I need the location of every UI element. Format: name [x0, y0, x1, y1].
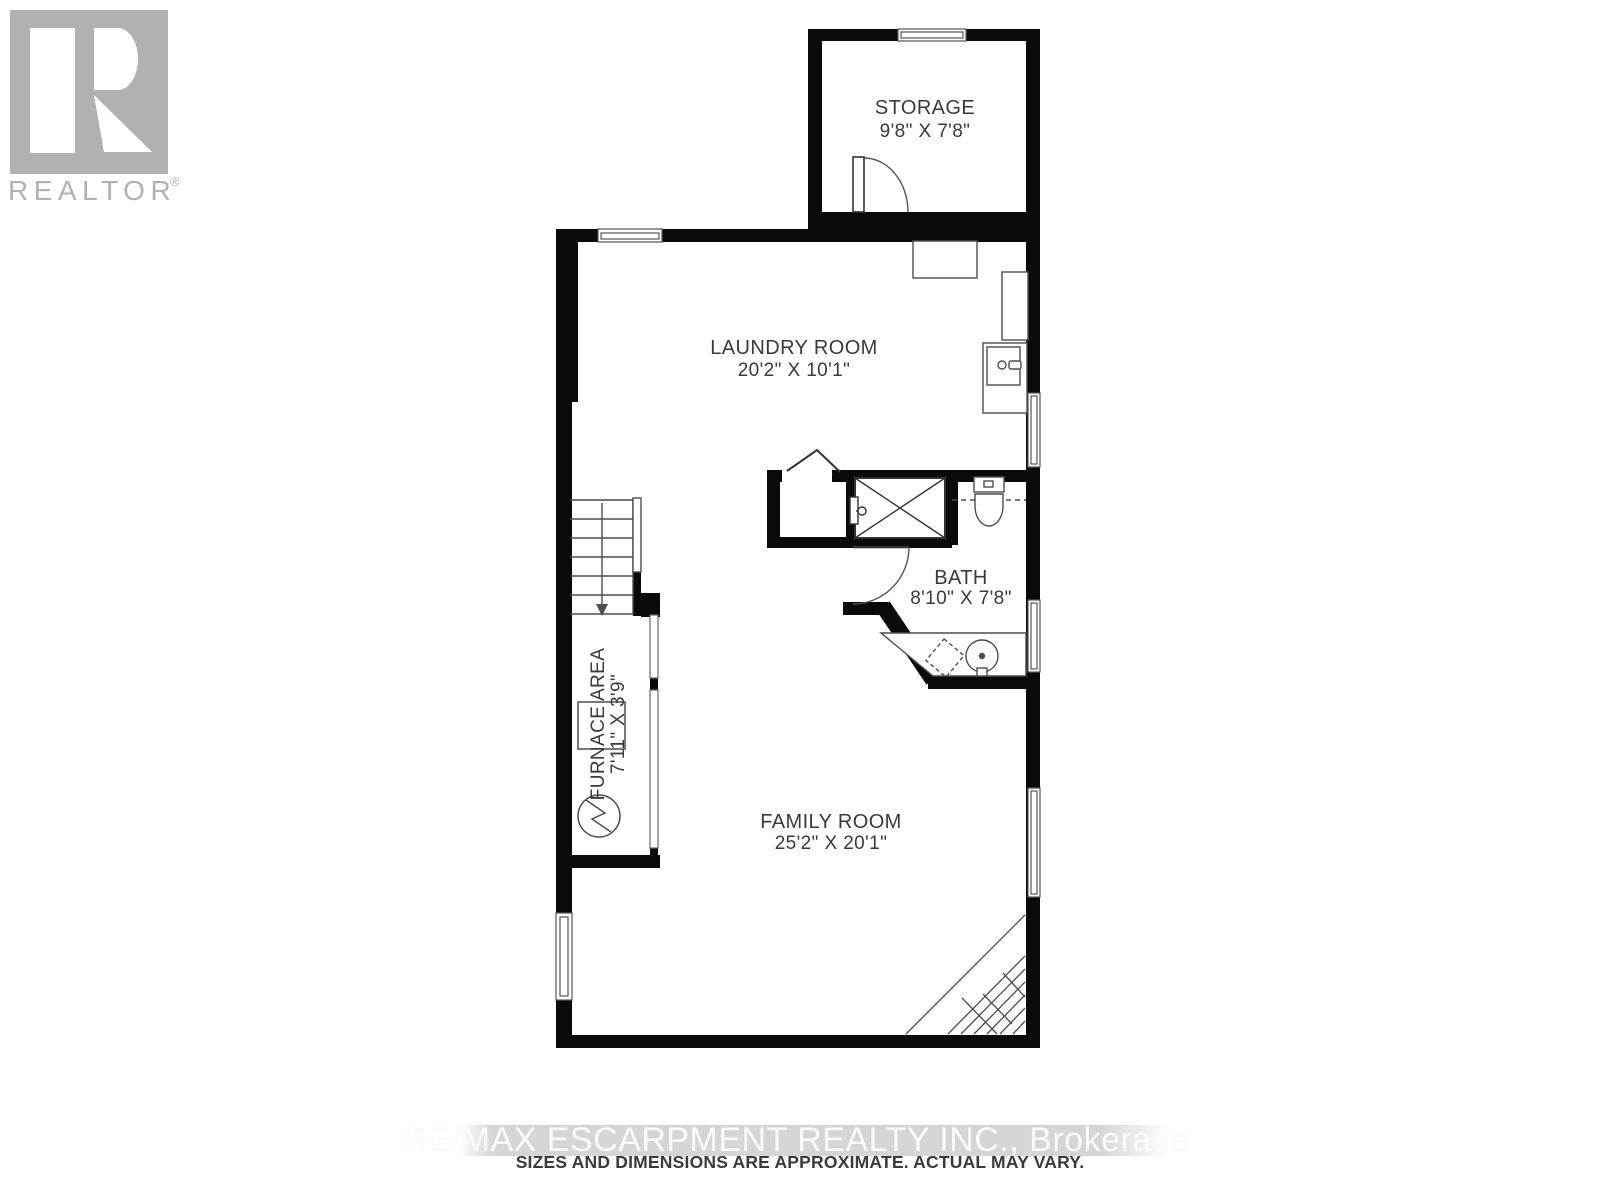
- window-bath-right: [1028, 600, 1040, 672]
- laundry-label: LAUNDRY ROOM: [710, 337, 877, 359]
- sink-drain-dot: [980, 654, 985, 659]
- tub-handle-icon: [1009, 361, 1021, 369]
- window-laundry-right: [1028, 393, 1040, 467]
- floorplan-page: REALTOR ®: [0, 0, 1600, 1200]
- shower: [850, 478, 945, 538]
- laundry-dims: 20'2" X 10'1": [738, 360, 851, 381]
- realtor-logo: REALTOR ®: [8, 10, 180, 206]
- windows: [556, 29, 1040, 1000]
- vanity-counter: [881, 633, 1026, 676]
- window-family-left: [556, 913, 572, 1000]
- bath-dims: 8'10" X 7'8": [910, 588, 1012, 609]
- wall-shower-right: [945, 470, 958, 545]
- wall-furnace-stub: [641, 593, 660, 617]
- footer: RE/MAX ESCARPMENT REALTY INC., Brokerage…: [403, 1121, 1190, 1172]
- bath-door: [853, 547, 909, 604]
- furnace-label: FURNACE AREA: [588, 648, 609, 801]
- family-label: FAMILY ROOM: [760, 811, 901, 833]
- corner-stairs-hatch: [906, 915, 1025, 1034]
- realtor-wordmark: REALTOR: [8, 175, 176, 206]
- storage-dims: 9'8" X 7'8": [880, 121, 971, 142]
- storage-door-leaf: [853, 157, 864, 212]
- wall-furnace-bottom: [556, 855, 660, 868]
- closet-bifold-door: [787, 450, 840, 472]
- bifold-door-icon: [787, 450, 840, 472]
- toilet-flush-button: [984, 481, 993, 487]
- sink-fixture: [977, 668, 987, 676]
- furnace-partition-panels: [650, 615, 658, 848]
- wall-main-left-upper: [572, 229, 578, 402]
- storage-door: [853, 157, 908, 212]
- wall-stair-post: [633, 571, 641, 616]
- laundry-fixtures: [913, 241, 1028, 413]
- stairs-handrail: [633, 498, 641, 572]
- tub-faucet-icon: [998, 361, 1006, 369]
- laundry-tub: [983, 343, 1027, 413]
- window-laundry-top: [598, 229, 662, 242]
- window-family-right: [1028, 788, 1040, 897]
- wall-furnace-post-1: [650, 678, 658, 690]
- bath-vanity: [881, 633, 1026, 677]
- laundry-appliance: [913, 241, 977, 278]
- registered-mark: ®: [170, 174, 180, 189]
- wall-bath-bottom: [928, 676, 1040, 689]
- wall-storage-left: [808, 29, 822, 242]
- disclaimer-text: SIZES AND DIMENSIONS ARE APPROXIMATE. AC…: [516, 1152, 1085, 1172]
- wall-closet-top-stub: [767, 470, 782, 482]
- bath-label: BATH: [934, 567, 987, 589]
- wall-furnace-post-2: [650, 848, 658, 862]
- furnace-dims: 7'11" X 3'9": [608, 674, 629, 774]
- storage-door-swing-arc: [864, 158, 908, 212]
- water-heater: [1002, 272, 1028, 340]
- stairs-down-arrow: [596, 503, 608, 616]
- toilet: [952, 477, 1026, 526]
- wall-main-bottom: [556, 1035, 1040, 1048]
- wall-storage-right: [1026, 29, 1040, 242]
- storage-label: STORAGE: [875, 97, 975, 119]
- window-storage-top: [898, 29, 966, 41]
- toilet-bowl: [975, 494, 1003, 526]
- bath-door-swing-arc: [853, 547, 909, 604]
- family-dims: 25'2" X 20'1": [775, 833, 888, 854]
- staircase: [570, 498, 641, 616]
- floorplan-drawing: REALTOR ®: [0, 0, 1600, 1200]
